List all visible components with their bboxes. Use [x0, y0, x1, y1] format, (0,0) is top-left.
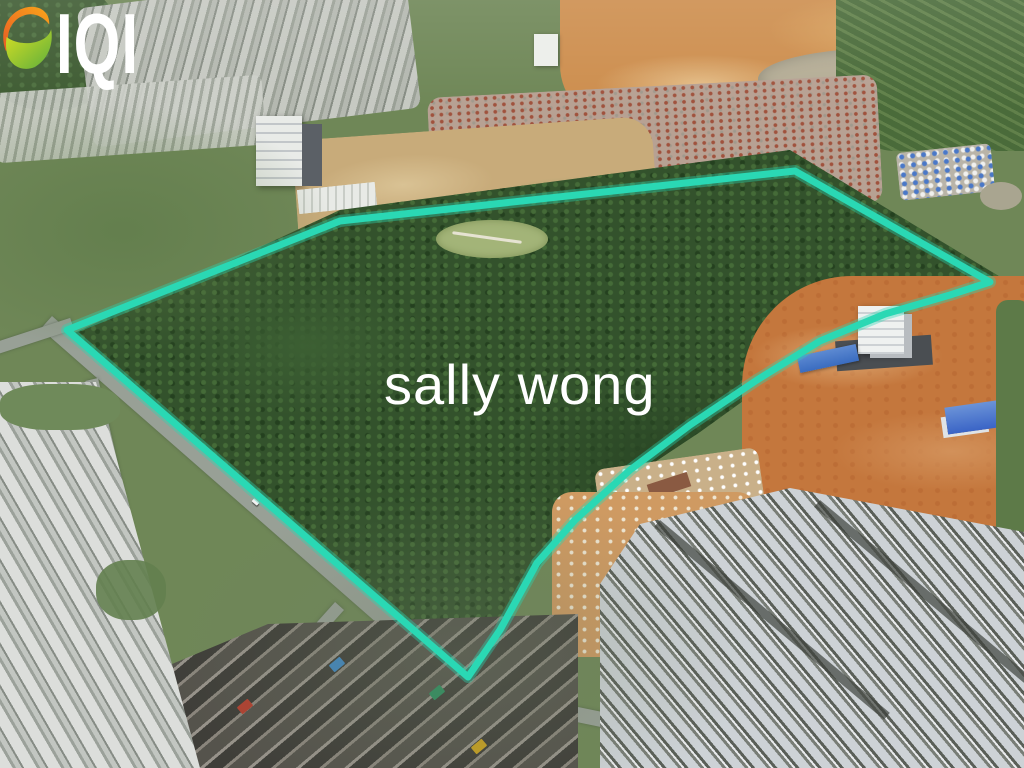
aerial-photo: IQI sally wong — [0, 0, 1024, 768]
iqi-logo: IQI — [0, 2, 139, 74]
iqi-swirl-icon — [0, 2, 54, 74]
land-boundary-glow — [67, 171, 990, 677]
watermark-text: sally wong — [384, 352, 655, 417]
land-boundary-line — [67, 171, 990, 677]
iqi-logo-text: IQI — [56, 2, 139, 87]
